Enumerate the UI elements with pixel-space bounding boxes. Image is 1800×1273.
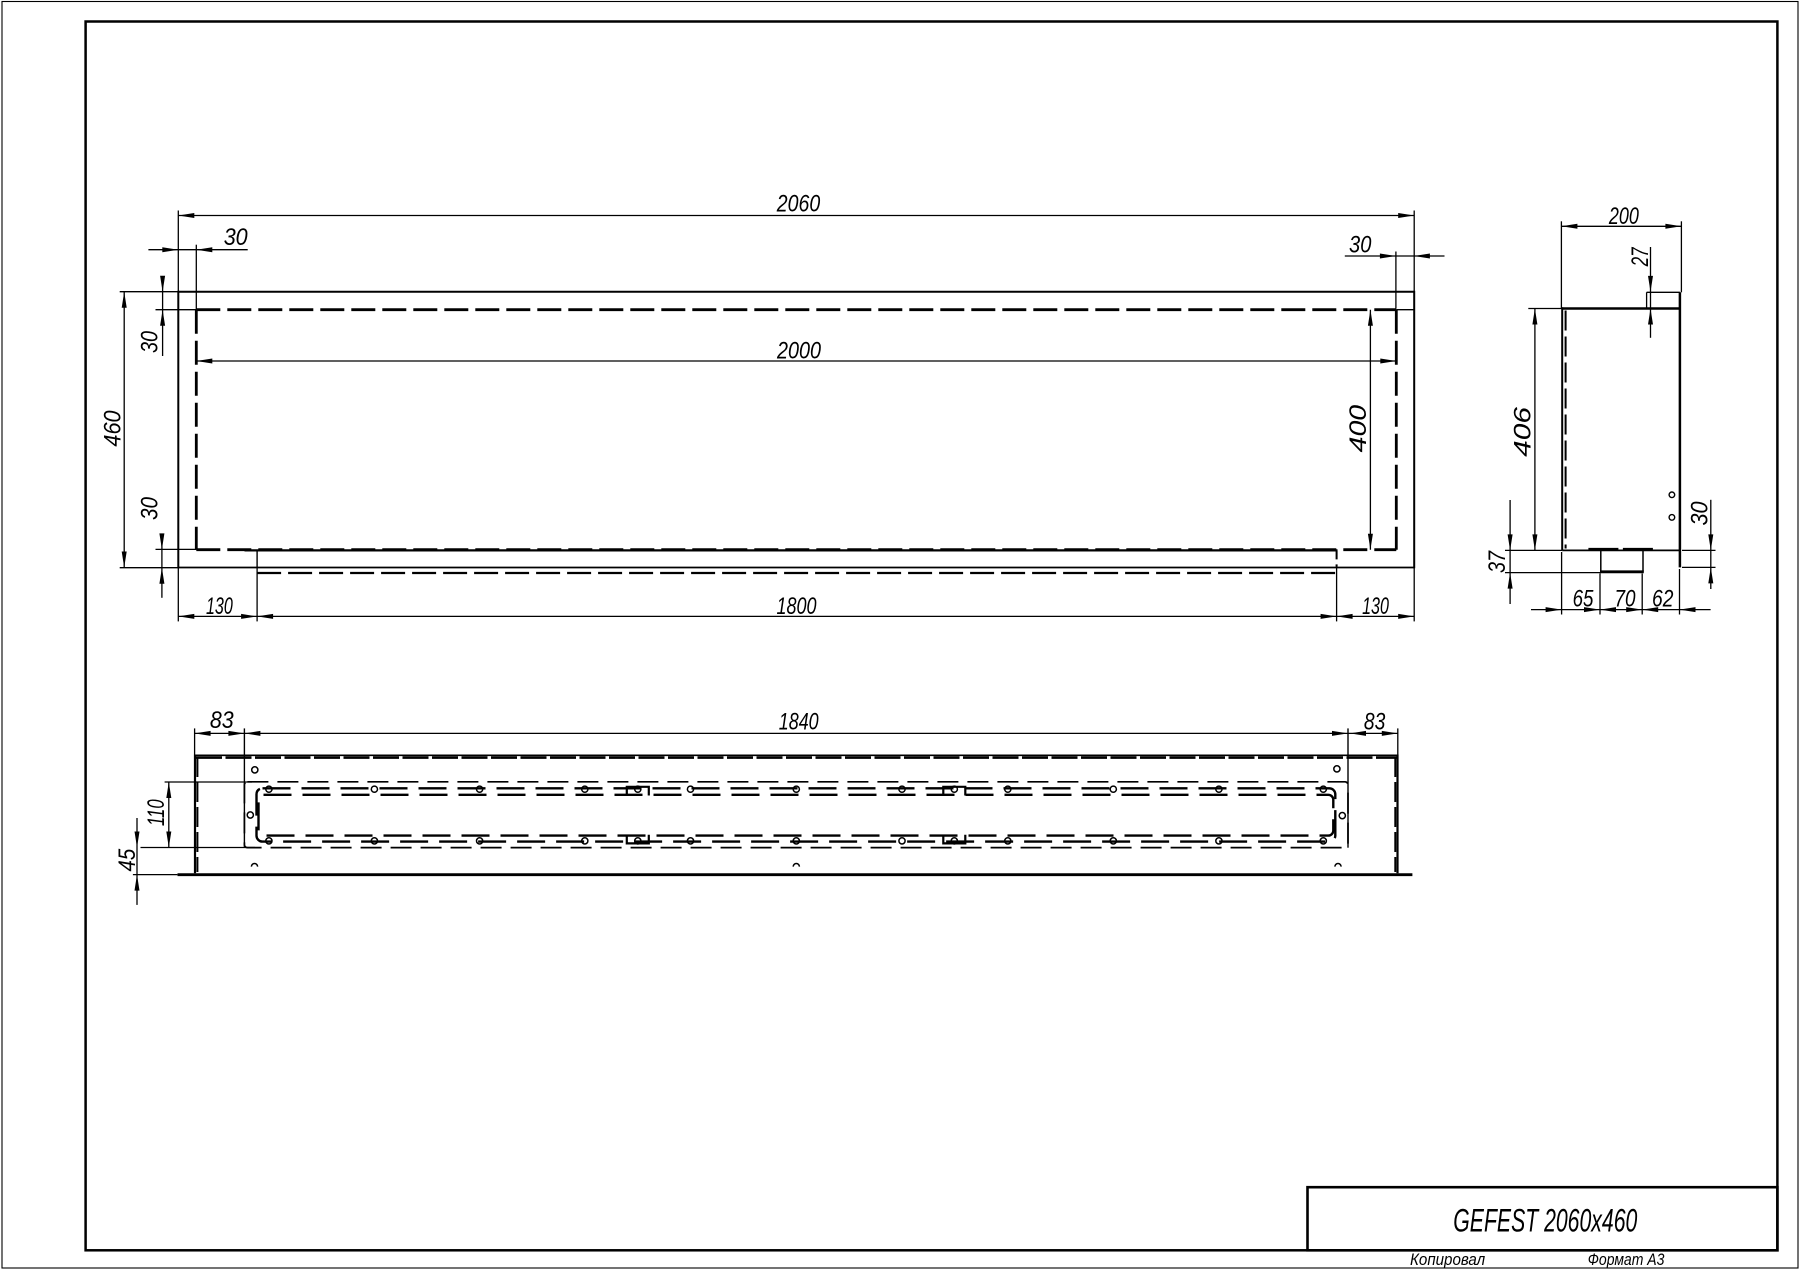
svg-text:30: 30 (1688, 502, 1714, 526)
svg-text:37: 37 (1485, 550, 1511, 573)
svg-text:2000: 2000 (776, 339, 821, 365)
svg-text:130: 130 (1362, 594, 1389, 620)
svg-text:110: 110 (144, 799, 170, 826)
svg-text:83: 83 (1364, 709, 1385, 735)
svg-text:30: 30 (1349, 232, 1371, 258)
svg-text:Копировал: Копировал (1410, 1251, 1485, 1269)
svg-text:70: 70 (1615, 587, 1636, 613)
svg-text:45: 45 (115, 848, 141, 871)
svg-text:1840: 1840 (779, 710, 819, 736)
svg-text:2060: 2060 (776, 192, 820, 218)
svg-text:30: 30 (138, 497, 164, 520)
svg-text:83: 83 (210, 708, 234, 734)
svg-text:Формат А3: Формат А3 (1588, 1251, 1665, 1269)
svg-text:30: 30 (137, 331, 163, 353)
svg-text:200: 200 (1608, 204, 1639, 230)
svg-text:460: 460 (101, 410, 127, 446)
svg-text:1800: 1800 (777, 594, 817, 620)
svg-text:406: 406 (1511, 406, 1537, 457)
svg-text:130: 130 (206, 594, 233, 620)
svg-text:30: 30 (224, 225, 248, 251)
svg-text:62: 62 (1652, 587, 1673, 613)
svg-text:GEFEST 2060x460: GEFEST 2060x460 (1453, 1203, 1637, 1239)
svg-text:65: 65 (1573, 587, 1594, 613)
svg-text:400: 400 (1346, 405, 1372, 453)
svg-text:27: 27 (1628, 247, 1654, 267)
